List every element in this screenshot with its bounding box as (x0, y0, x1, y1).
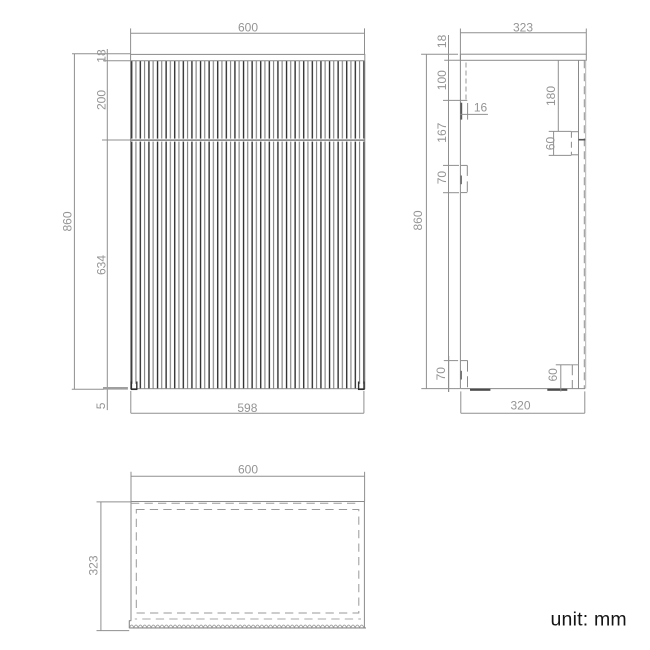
svg-text:5: 5 (94, 402, 108, 409)
svg-text:598: 598 (237, 401, 257, 415)
svg-text:180: 180 (544, 86, 558, 106)
svg-text:323: 323 (513, 20, 533, 34)
svg-text:167: 167 (435, 122, 449, 142)
svg-text:600: 600 (238, 20, 258, 34)
svg-text:860: 860 (411, 210, 425, 230)
svg-text:70: 70 (434, 367, 448, 381)
svg-text:16: 16 (474, 101, 488, 115)
svg-text:600: 600 (238, 463, 258, 477)
svg-text:100: 100 (435, 70, 449, 90)
svg-text:unit: mm: unit: mm (551, 609, 627, 631)
svg-text:18: 18 (435, 34, 449, 48)
svg-text:634: 634 (95, 255, 109, 275)
svg-text:860: 860 (60, 211, 74, 231)
svg-text:200: 200 (95, 90, 109, 110)
svg-text:60: 60 (546, 368, 560, 382)
svg-text:320: 320 (510, 399, 530, 413)
svg-text:18: 18 (95, 49, 109, 63)
svg-text:70: 70 (435, 171, 449, 185)
svg-text:323: 323 (86, 555, 100, 575)
svg-text:60: 60 (544, 137, 558, 151)
